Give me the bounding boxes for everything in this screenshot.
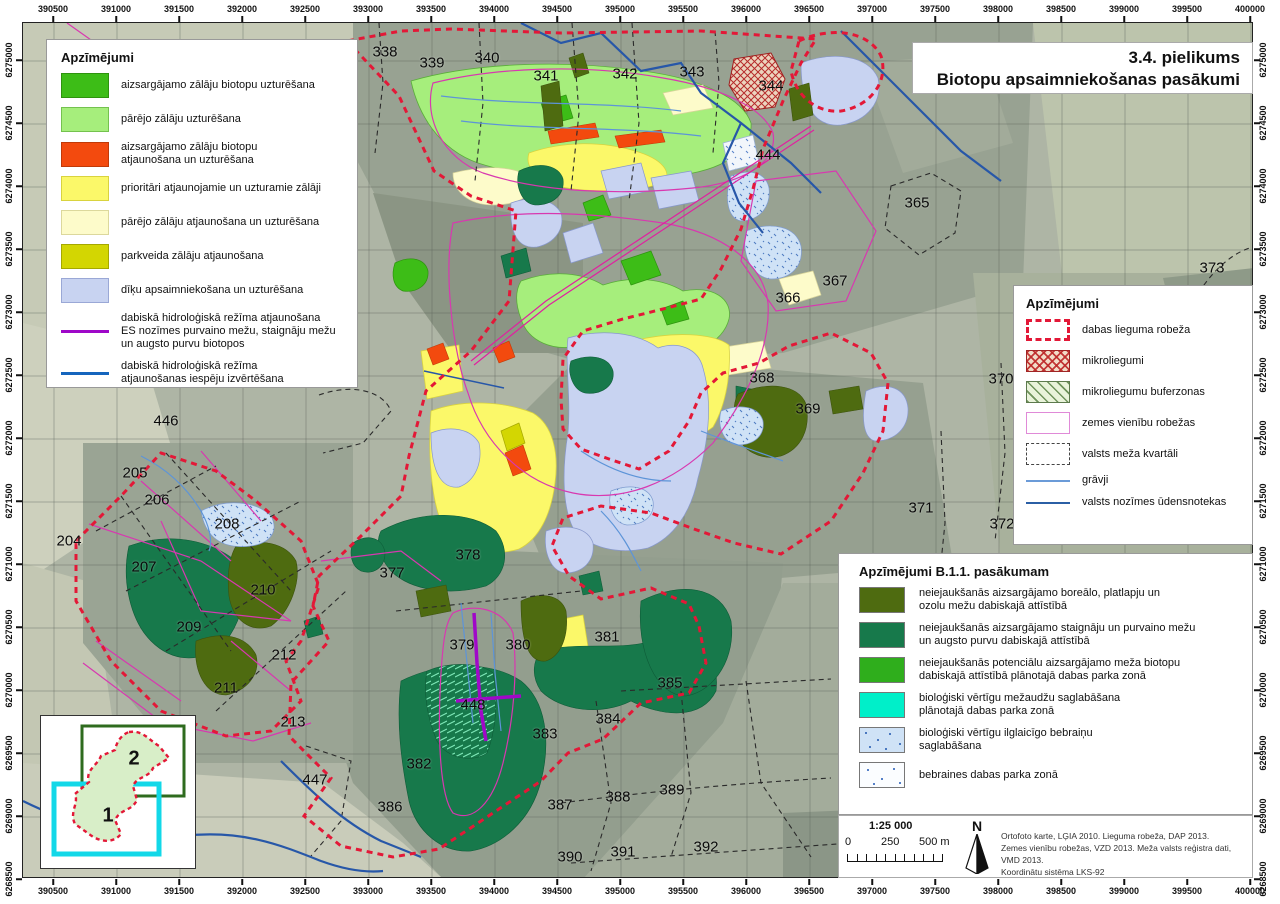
legend-swatch <box>61 372 109 375</box>
legend-title: Apzīmējumi <box>61 50 349 65</box>
legend-swatch <box>1026 412 1070 434</box>
legend-item: dabiskā hidroloģiskā režīma atjaunošana … <box>61 312 349 351</box>
legend-item-label: bioloģiski vērtīgu mežaudžu saglabāšana … <box>919 692 1120 718</box>
axis-label: 397500 <box>920 886 950 896</box>
legend-swatch <box>1026 502 1070 504</box>
axis-label: 392500 <box>290 4 320 14</box>
credit-line: Ortofoto karte, LĢIA 2010. Lieguma robež… <box>1001 830 1249 842</box>
axis-label: 396500 <box>794 4 824 14</box>
axis-label: 6275000 <box>1258 42 1268 77</box>
legend-item: pārējo zālāju atjaunošana un uzturēšana <box>61 210 349 235</box>
axis-tick <box>1123 879 1125 885</box>
axis-tick <box>934 879 936 885</box>
axis-label: 6273000 <box>4 294 14 329</box>
legend-item: valsts nozīmes ūdensnotekas <box>1026 496 1244 509</box>
legend-item: aizsargājamo zālāju biotopu atjaunošana … <box>61 141 349 167</box>
legend-item: dīķu apsaimniekošana un uzturēšana <box>61 278 349 303</box>
inset-graphics <box>41 716 195 868</box>
axis-tick <box>808 879 810 885</box>
axis-tick <box>871 879 873 885</box>
axis-label: 395000 <box>605 886 635 896</box>
axis-label: 6274000 <box>1258 168 1268 203</box>
legend-swatch <box>61 210 109 235</box>
scale-and-credits: 1:25 000 0 250 500 m N Ortofoto karte, L… <box>838 815 1253 878</box>
legend-swatch <box>1026 350 1070 372</box>
axis-tick <box>1186 879 1188 885</box>
axis-label: 6271500 <box>1258 483 1268 518</box>
legend-item: neiejaukšanās aizsargājamo boreālo, plat… <box>859 587 1244 613</box>
title-line-1: 3.4. pielikums <box>913 47 1240 69</box>
axis-tick <box>304 879 306 885</box>
axis-label: 6272500 <box>1258 357 1268 392</box>
legend-biotope-measures: Apzīmējumi aizsargājamo zālāju biotopu u… <box>46 39 358 388</box>
axis-label: 394500 <box>542 4 572 14</box>
axis-label: 399500 <box>1172 886 1202 896</box>
scale-tick-500: 500 m <box>919 836 950 848</box>
axis-tick <box>1254 500 1260 502</box>
legend-swatch <box>61 244 109 269</box>
scale-tick-250: 250 <box>881 836 899 848</box>
axis-label: 393000 <box>353 4 383 14</box>
axis-label: 6272500 <box>4 357 14 392</box>
legend-item: valsts meža kvartāli <box>1026 443 1244 465</box>
axis-tick <box>619 879 621 885</box>
legend-item: bioloģiski vērtīgu mežaudžu saglabāšana … <box>859 692 1244 718</box>
axis-tick <box>1249 879 1251 885</box>
axis-label: 6273500 <box>4 231 14 266</box>
legend-title: Apzīmējumi <box>1026 296 1244 311</box>
legend-item: aizsargājamo zālāju biotopu uzturēšana <box>61 73 349 98</box>
axis-label: 6269500 <box>1258 735 1268 770</box>
legend-swatch <box>61 73 109 98</box>
legend-swatch <box>1026 319 1070 341</box>
legend-item-label: dabiskā hidroloģiskā režīma atjaunošana … <box>121 312 336 351</box>
axis-label: 392500 <box>290 886 320 896</box>
axis-label: 400000 <box>1235 4 1265 14</box>
axis-tick <box>1254 185 1260 187</box>
legend-boundaries: Apzīmējumi dabas lieguma robeža mikrolie… <box>1013 285 1253 545</box>
axis-label: 6271000 <box>4 546 14 581</box>
axis-label: 6270500 <box>4 609 14 644</box>
axis-label: 391000 <box>101 4 131 14</box>
axis-label: 393500 <box>416 4 446 14</box>
legend-item: bebraines dabas parka zonā <box>859 762 1244 788</box>
axis-tick <box>1254 815 1260 817</box>
legend-swatch <box>859 692 905 718</box>
axis-tick <box>241 879 243 885</box>
axis-tick <box>1254 752 1260 754</box>
axis-label: 6274500 <box>1258 105 1268 140</box>
axis-label: 392000 <box>227 4 257 14</box>
legend-b11-measure: Apzīmējumi B.1.1. pasākumam neiejaukšanā… <box>838 553 1253 815</box>
axis-label: 6274500 <box>4 105 14 140</box>
axis-label: 6269500 <box>4 735 14 770</box>
axis-label: 6275000 <box>4 42 14 77</box>
inset-overview-map: 2 1 <box>40 715 196 869</box>
legend-item-label: zemes vienību robežas <box>1082 417 1195 430</box>
axis-tick <box>115 879 117 885</box>
legend-item-label: bioloģiski vērtīgu ilglaicīgo bebraiņu s… <box>919 727 1093 753</box>
axis-label: 391500 <box>164 4 194 14</box>
legend-item-label: neiejaukšanās aizsargājamo staignāju un … <box>919 622 1195 648</box>
axis-tick <box>997 879 999 885</box>
legend-item: grāvji <box>1026 474 1244 487</box>
legend-item: neiejaukšanās potenciālu aizsargājamo me… <box>859 657 1244 683</box>
axis-label: 398000 <box>983 886 1013 896</box>
legend-item-label: neiejaukšanās potenciālu aizsargājamo me… <box>919 657 1180 683</box>
legend-swatch <box>1026 381 1070 403</box>
axis-label: 398500 <box>1046 886 1076 896</box>
axis-tick <box>1254 311 1260 313</box>
axis-label: 6269000 <box>1258 798 1268 833</box>
credit-line: Zemes vienību robežas, VZD 2013. Meža va… <box>1001 842 1249 866</box>
legend-item-label: bebraines dabas parka zonā <box>919 769 1058 782</box>
axis-label: 396000 <box>731 886 761 896</box>
axis-label: 394000 <box>479 886 509 896</box>
legend-item-label: dabas lieguma robeža <box>1082 324 1190 337</box>
legend-swatch <box>859 727 905 753</box>
legend-item: bioloģiski vērtīgu ilglaicīgo bebraiņu s… <box>859 727 1244 753</box>
axis-label: 397000 <box>857 886 887 896</box>
axis-label: 396500 <box>794 886 824 896</box>
axis-tick <box>556 879 558 885</box>
axis-label: 6271000 <box>1258 546 1268 581</box>
title-line-2: Biotopu apsaimniekošanas pasākumi <box>913 69 1240 91</box>
legend-swatch <box>1026 480 1070 482</box>
axis-tick <box>1060 879 1062 885</box>
axis-label: 6270500 <box>1258 609 1268 644</box>
map-credits: Ortofoto karte, LĢIA 2010. Lieguma robež… <box>1001 830 1249 878</box>
map-sheet: 3383393403413423433444443653733663673683… <box>0 0 1280 904</box>
legend-item: zemes vienību robežas <box>1026 412 1244 434</box>
legend-item-label: mikroliegumu buferzonas <box>1082 386 1205 399</box>
legend-item: mikroliegumi <box>1026 350 1244 372</box>
axis-tick <box>1254 374 1260 376</box>
axis-label: 395500 <box>668 4 698 14</box>
axis-label: 6270000 <box>4 672 14 707</box>
axis-label: 6272000 <box>4 420 14 455</box>
axis-label: 6268500 <box>4 861 14 896</box>
axis-tick <box>1254 626 1260 628</box>
legend-item-label: mikroliegumi <box>1082 355 1144 368</box>
scale-bar <box>847 854 943 862</box>
legend-item-label: dīķu apsaimniekošana un uzturēšana <box>121 284 303 297</box>
axis-tick <box>1254 59 1260 61</box>
legend-swatch <box>859 587 905 613</box>
scale-tick-0: 0 <box>845 836 851 848</box>
legend-item-label: pārējo zālāju uzturēšana <box>121 113 241 126</box>
legend-swatch <box>61 176 109 201</box>
axis-label: 392000 <box>227 886 257 896</box>
legend-item: pārējo zālāju uzturēšana <box>61 107 349 132</box>
axis-label: 6270000 <box>1258 672 1268 707</box>
legend-swatch <box>61 278 109 303</box>
scale-ratio: 1:25 000 <box>869 820 912 832</box>
axis-label: 393500 <box>416 886 446 896</box>
map-title: 3.4. pielikums Biotopu apsaimniekošanas … <box>912 42 1253 94</box>
legend-item-label: grāvji <box>1082 474 1108 487</box>
axis-label: 398000 <box>983 4 1013 14</box>
axis-label: 399000 <box>1109 4 1139 14</box>
legend-item-label: dabiskā hidroloģiskā režīma atjaunošanas… <box>121 360 284 386</box>
axis-label: 399500 <box>1172 4 1202 14</box>
legend-swatch <box>61 330 109 333</box>
legend-title: Apzīmējumi B.1.1. pasākumam <box>859 564 1244 579</box>
axis-tick <box>745 879 747 885</box>
legend-item: parkveida zālāju atjaunošana <box>61 244 349 269</box>
axis-tick <box>16 878 22 880</box>
axis-label: 400000 <box>1235 886 1265 896</box>
legend-item: prioritāri atjaunojamie un uzturamie zāl… <box>61 176 349 201</box>
legend-swatch <box>61 142 109 167</box>
axis-label: 393000 <box>353 886 383 896</box>
axis-tick <box>367 879 369 885</box>
north-arrow: N <box>957 818 997 876</box>
legend-swatch <box>859 622 905 648</box>
axis-label: 6274000 <box>4 168 14 203</box>
legend-swatch <box>859 762 905 788</box>
axis-tick <box>1254 878 1260 880</box>
axis-label: 6272000 <box>1258 420 1268 455</box>
legend-swatch <box>1026 443 1070 465</box>
legend-item: dabiskā hidroloģiskā režīma atjaunošanas… <box>61 360 349 386</box>
axis-tick <box>1254 248 1260 250</box>
legend-item-label: prioritāri atjaunojamie un uzturamie zāl… <box>121 182 321 195</box>
legend-swatch <box>859 657 905 683</box>
axis-label: 391500 <box>164 886 194 896</box>
axis-label: 394500 <box>542 886 572 896</box>
legend-item-label: aizsargājamo zālāju biotopu uzturēšana <box>121 79 315 92</box>
axis-label: 6271500 <box>4 483 14 518</box>
axis-label: 397000 <box>857 4 887 14</box>
axis-label: 397500 <box>920 4 950 14</box>
legend-item-label: neiejaukšanās aizsargājamo boreālo, plat… <box>919 587 1160 613</box>
axis-label: 6268500 <box>1258 861 1268 896</box>
axis-tick <box>1254 563 1260 565</box>
axis-label: 398500 <box>1046 4 1076 14</box>
legend-item-label: pārējo zālāju atjaunošana un uzturēšana <box>121 216 319 229</box>
legend-item-label: valsts nozīmes ūdensnotekas <box>1082 496 1226 509</box>
credit-line: Koordinātu sistēma LKS-92 <box>1001 866 1249 878</box>
axis-label: 6269000 <box>4 798 14 833</box>
axis-label: 396000 <box>731 4 761 14</box>
axis-tick <box>1254 122 1260 124</box>
axis-label: 399000 <box>1109 886 1139 896</box>
axis-label: 394000 <box>479 4 509 14</box>
axis-tick <box>178 879 180 885</box>
inset-label-zone2: 2 <box>128 748 139 771</box>
legend-item: mikroliegumu buferzonas <box>1026 381 1244 403</box>
inset-label-zone1: 1 <box>102 805 113 828</box>
axis-label: 6273500 <box>1258 231 1268 266</box>
axis-label: 390500 <box>38 4 68 14</box>
north-label: N <box>957 818 997 834</box>
legend-item: dabas lieguma robeža <box>1026 319 1244 341</box>
north-arrow-icon <box>964 834 990 874</box>
axis-label: 391000 <box>101 886 131 896</box>
axis-tick <box>493 879 495 885</box>
axis-tick <box>682 879 684 885</box>
legend-swatch <box>61 107 109 132</box>
axis-tick <box>1254 689 1260 691</box>
axis-tick <box>1254 437 1260 439</box>
legend-item-label: valsts meža kvartāli <box>1082 448 1178 461</box>
axis-tick <box>430 879 432 885</box>
axis-label: 395500 <box>668 886 698 896</box>
legend-item-label: parkveida zālāju atjaunošana <box>121 250 264 263</box>
axis-label: 390500 <box>38 886 68 896</box>
legend-item: neiejaukšanās aizsargājamo staignāju un … <box>859 622 1244 648</box>
axis-label: 6273000 <box>1258 294 1268 329</box>
axis-label: 395000 <box>605 4 635 14</box>
legend-item-label: aizsargājamo zālāju biotopu atjaunošana … <box>121 141 257 167</box>
axis-tick <box>52 879 54 885</box>
